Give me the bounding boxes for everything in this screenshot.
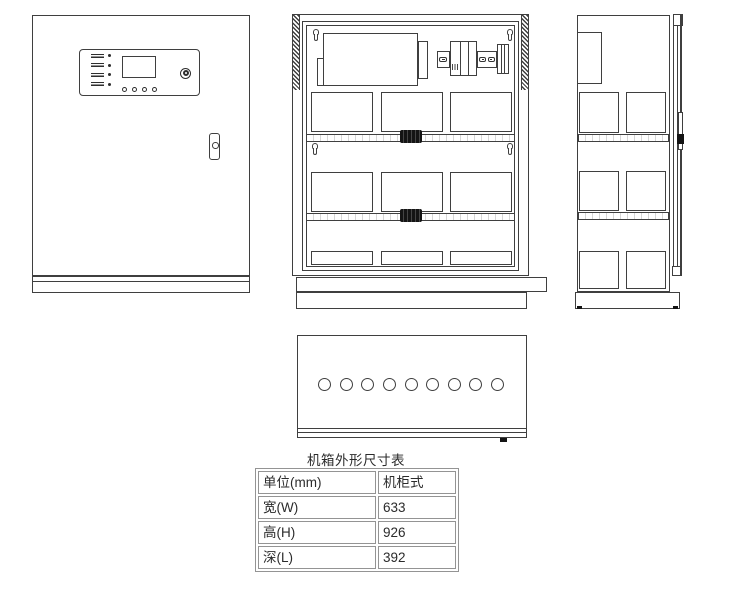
keyhole-mount xyxy=(506,143,513,156)
module-rect xyxy=(381,92,443,132)
front-plinth-line-upper xyxy=(33,275,249,277)
cable-hole xyxy=(491,378,504,391)
indicator-led xyxy=(108,83,111,86)
side-mounting-rail xyxy=(578,134,669,142)
rail-clip xyxy=(400,209,422,222)
cabinet-drawing-canvas: 机箱外形尺寸表 单位(mm) 机柜式 宽(W) 633 高(H) 926 深(L… xyxy=(0,0,731,605)
terminal-screw xyxy=(479,57,486,62)
display-screen xyxy=(122,56,156,78)
transformer-right-tab xyxy=(418,41,428,79)
base-foot xyxy=(577,306,582,310)
cable-hole xyxy=(426,378,439,391)
side-view-outline xyxy=(577,15,670,292)
table-row: 高(H) 926 xyxy=(258,521,456,544)
bottom-band-line-lower xyxy=(298,432,526,433)
dim-value-width: 633 xyxy=(378,496,456,519)
dim-label-unit: 单位(mm) xyxy=(258,471,376,494)
cable-hole xyxy=(361,378,374,391)
indicator-led xyxy=(108,64,111,67)
side-view-base xyxy=(575,292,680,309)
indicator-bar xyxy=(91,82,104,86)
table-row: 单位(mm) 机柜式 xyxy=(258,471,456,494)
module-rect xyxy=(381,251,443,265)
panel-button xyxy=(122,87,127,92)
cable-hole-row xyxy=(318,378,504,389)
module-rect xyxy=(450,251,512,265)
module-rect xyxy=(450,172,512,212)
panel-button xyxy=(142,87,147,92)
cable-hole xyxy=(318,378,331,391)
dimension-table: 单位(mm) 机柜式 宽(W) 633 高(H) 926 深(L) 392 xyxy=(255,468,459,572)
dim-label-width: 宽(W) xyxy=(258,496,376,519)
internal-view-base-lower xyxy=(296,292,527,309)
front-plinth-line-lower xyxy=(33,281,249,282)
module-rect xyxy=(381,172,443,212)
breaker-label-marks xyxy=(452,64,461,70)
side-module-rect xyxy=(579,92,619,133)
breaker-end-strip xyxy=(501,44,505,74)
door-lock xyxy=(212,142,219,149)
dim-value-depth: 392 xyxy=(378,546,456,569)
indicator-bar xyxy=(91,63,104,67)
bottom-band-line-upper xyxy=(298,428,526,429)
transformer-block xyxy=(323,33,418,86)
breaker-divider xyxy=(460,41,461,76)
bottom-foot-mark xyxy=(500,438,507,442)
door-handle xyxy=(209,133,220,160)
breaker-divider xyxy=(468,41,469,76)
dim-label-height: 高(H) xyxy=(258,521,376,544)
side-mounting-rail xyxy=(578,212,669,220)
module-rect xyxy=(450,92,512,132)
cable-hole xyxy=(448,378,461,391)
keyhole-mount xyxy=(312,29,319,42)
indicator-led xyxy=(108,73,111,76)
table-row: 宽(W) 633 xyxy=(258,496,456,519)
side-module-rect xyxy=(579,171,619,211)
indicator-bar xyxy=(91,73,104,77)
indicator-led xyxy=(108,54,111,57)
keyhole-mount xyxy=(506,29,513,42)
vent-hatch-left xyxy=(293,15,300,90)
side-module-rect xyxy=(626,92,666,133)
door-edge-strip xyxy=(673,26,679,276)
module-rect xyxy=(311,172,373,212)
front-view-outline xyxy=(32,15,250,293)
control-panel xyxy=(79,49,200,96)
breaker-body xyxy=(450,41,477,76)
rail-clip xyxy=(400,130,422,143)
panel-knob-center xyxy=(183,70,189,76)
bottom-view-outline xyxy=(297,335,527,438)
panel-knob xyxy=(180,68,191,79)
dimension-table-title: 机箱外形尺寸表 xyxy=(255,449,457,469)
module-rect xyxy=(311,92,373,132)
side-handle-latch xyxy=(677,134,684,144)
terminal-screw xyxy=(488,57,495,62)
dim-value-height: 926 xyxy=(378,521,456,544)
panel-button xyxy=(132,87,137,92)
indicator-bar xyxy=(91,54,104,58)
module-rect xyxy=(311,251,373,265)
internal-view-base-upper xyxy=(296,277,547,292)
table-row: 深(L) 392 xyxy=(258,546,456,569)
keyhole-mount xyxy=(311,143,318,156)
side-module-rect xyxy=(579,251,619,289)
vent-hatch-right xyxy=(521,15,528,90)
cable-hole xyxy=(469,378,482,391)
cable-hole xyxy=(383,378,396,391)
panel-button xyxy=(152,87,157,92)
side-module-rect xyxy=(626,251,666,289)
terminal-screw xyxy=(439,57,447,62)
internal-view-outline xyxy=(292,14,529,276)
base-foot xyxy=(673,306,678,310)
cable-hole xyxy=(405,378,418,391)
dim-value-type: 机柜式 xyxy=(378,471,456,494)
side-top-compartment xyxy=(578,32,602,84)
side-handle xyxy=(678,112,683,150)
dim-label-depth: 深(L) xyxy=(258,546,376,569)
cable-hole xyxy=(340,378,353,391)
side-module-rect xyxy=(626,171,666,211)
